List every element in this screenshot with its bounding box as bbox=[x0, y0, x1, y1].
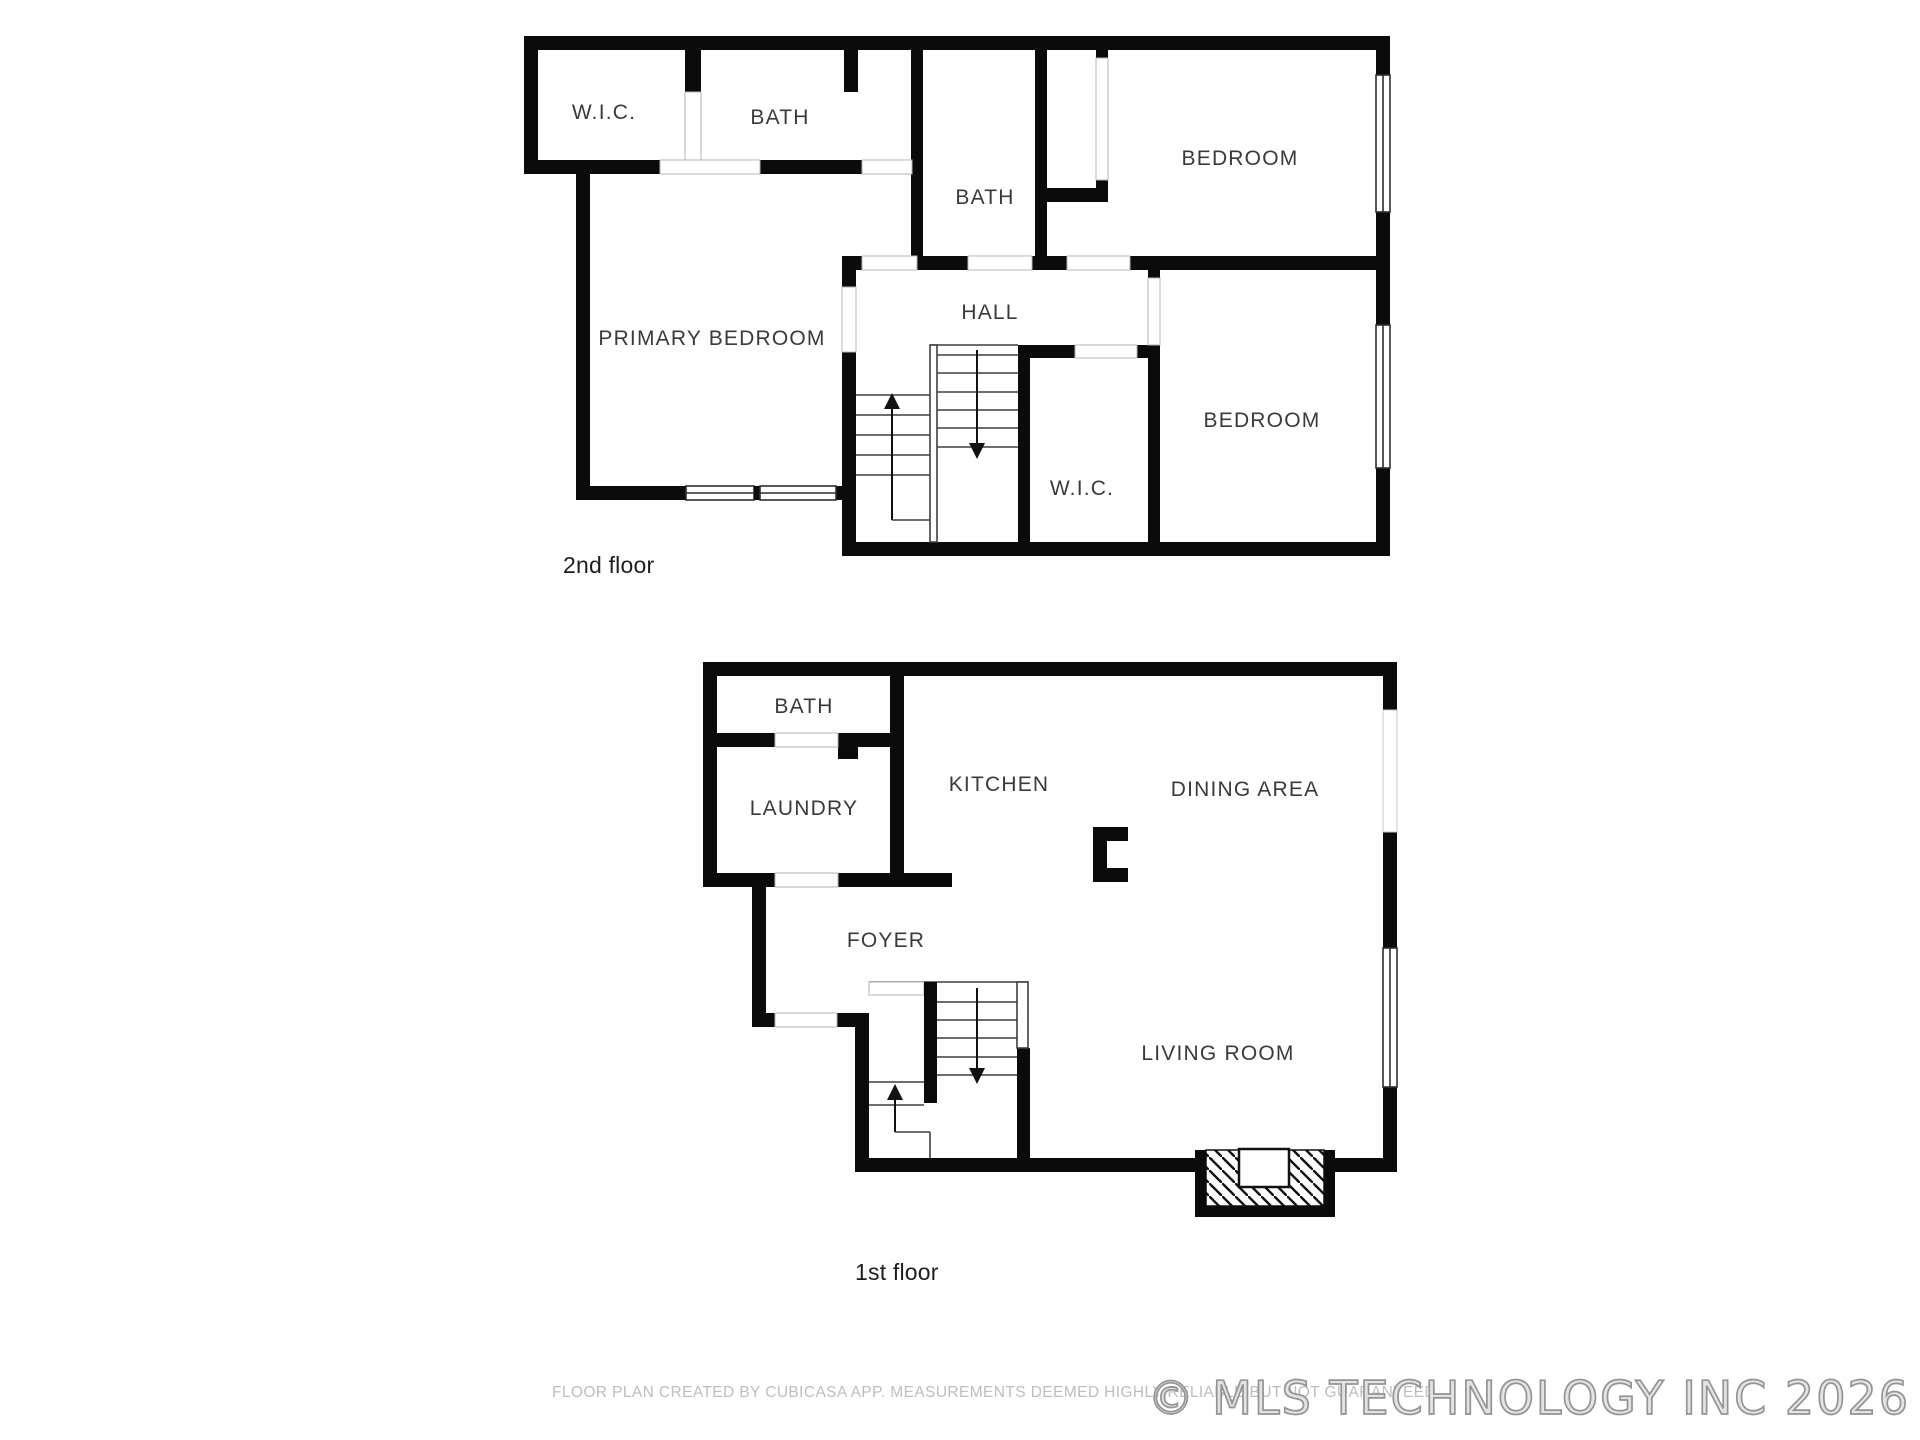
second-floor-caption: 2nd floor bbox=[563, 552, 654, 578]
wall bbox=[524, 36, 1390, 50]
door-opening bbox=[1075, 345, 1137, 358]
room-label-foyer: FOYER bbox=[847, 929, 925, 952]
wall bbox=[703, 662, 717, 887]
wall bbox=[890, 662, 904, 887]
door-opening bbox=[862, 256, 917, 270]
door-opening bbox=[1067, 256, 1130, 270]
closet-door-opening bbox=[1096, 58, 1108, 180]
fireplace-border bbox=[1195, 1206, 1335, 1217]
room-label-living-room: LIVING ROOM bbox=[1141, 1042, 1294, 1065]
wall bbox=[842, 542, 1390, 556]
stair-rail bbox=[1017, 982, 1028, 1048]
room-label-kitchen: KITCHEN bbox=[949, 773, 1050, 796]
stair-divider-wall bbox=[924, 982, 937, 1103]
background bbox=[0, 0, 1920, 1440]
wall bbox=[1035, 36, 1047, 270]
wall bbox=[752, 1013, 775, 1027]
wall bbox=[703, 662, 1397, 676]
door-opening bbox=[842, 287, 856, 352]
door-opening bbox=[775, 873, 838, 887]
door-opening bbox=[862, 160, 912, 174]
patio-door-opening bbox=[1383, 710, 1397, 832]
room-label-bedroom-top: BEDROOM bbox=[1182, 147, 1299, 170]
room-label-laundry: LAUNDRY bbox=[750, 797, 858, 820]
kitchen-divider-wall bbox=[1093, 827, 1128, 841]
room-label-bath-middle: BATH bbox=[955, 186, 1014, 209]
room-label-dining-area: DINING AREA bbox=[1171, 778, 1320, 801]
wall bbox=[855, 1158, 1195, 1172]
wall bbox=[576, 160, 590, 500]
wall bbox=[1096, 36, 1108, 58]
floor-plan-canvas: W.I.C. BATH BATH BEDROOM PRIMARY BEDROOM… bbox=[0, 0, 1920, 1440]
wall bbox=[838, 873, 952, 887]
stair-entry-opening bbox=[869, 982, 924, 995]
watermark-text: © MLS TECHNOLOGY INC 2026 bbox=[1148, 1371, 1910, 1425]
door-opening bbox=[968, 256, 1032, 270]
wall bbox=[752, 873, 766, 1027]
room-label-hall: HALL bbox=[961, 301, 1018, 324]
wall bbox=[844, 36, 858, 92]
room-label-bath: BATH bbox=[774, 695, 833, 718]
first-floor-caption: 1st floor bbox=[855, 1259, 939, 1285]
door-opening bbox=[1148, 278, 1160, 345]
door-opening bbox=[775, 733, 838, 747]
entry-door-opening bbox=[775, 1013, 837, 1027]
room-label-bedroom-lower: BEDROOM bbox=[1204, 409, 1321, 432]
room-label-wic-left: W.I.C. bbox=[572, 101, 636, 124]
door-opening bbox=[685, 92, 701, 160]
wall bbox=[1335, 1158, 1397, 1172]
wall bbox=[911, 36, 923, 263]
wall bbox=[1017, 1048, 1030, 1158]
room-label-primary-bedroom: PRIMARY BEDROOM bbox=[598, 327, 825, 350]
wall bbox=[703, 733, 775, 747]
wall bbox=[1018, 345, 1030, 556]
window-mullion bbox=[754, 486, 760, 500]
firebox bbox=[1239, 1149, 1289, 1187]
door-opening bbox=[660, 160, 760, 174]
wall bbox=[838, 733, 858, 759]
kitchen-divider-wall bbox=[1093, 868, 1128, 882]
wall bbox=[855, 1013, 869, 1172]
wall bbox=[685, 36, 701, 92]
room-label-wic-center: W.I.C. bbox=[1050, 477, 1114, 500]
stair-rail bbox=[930, 345, 937, 542]
fireplace bbox=[1195, 1149, 1335, 1217]
floor-plan-page: W.I.C. BATH BATH BEDROOM PRIMARY BEDROOM… bbox=[0, 0, 1920, 1440]
room-label-bath-left: BATH bbox=[750, 106, 809, 129]
wall bbox=[1096, 180, 1108, 202]
wall bbox=[524, 36, 538, 171]
